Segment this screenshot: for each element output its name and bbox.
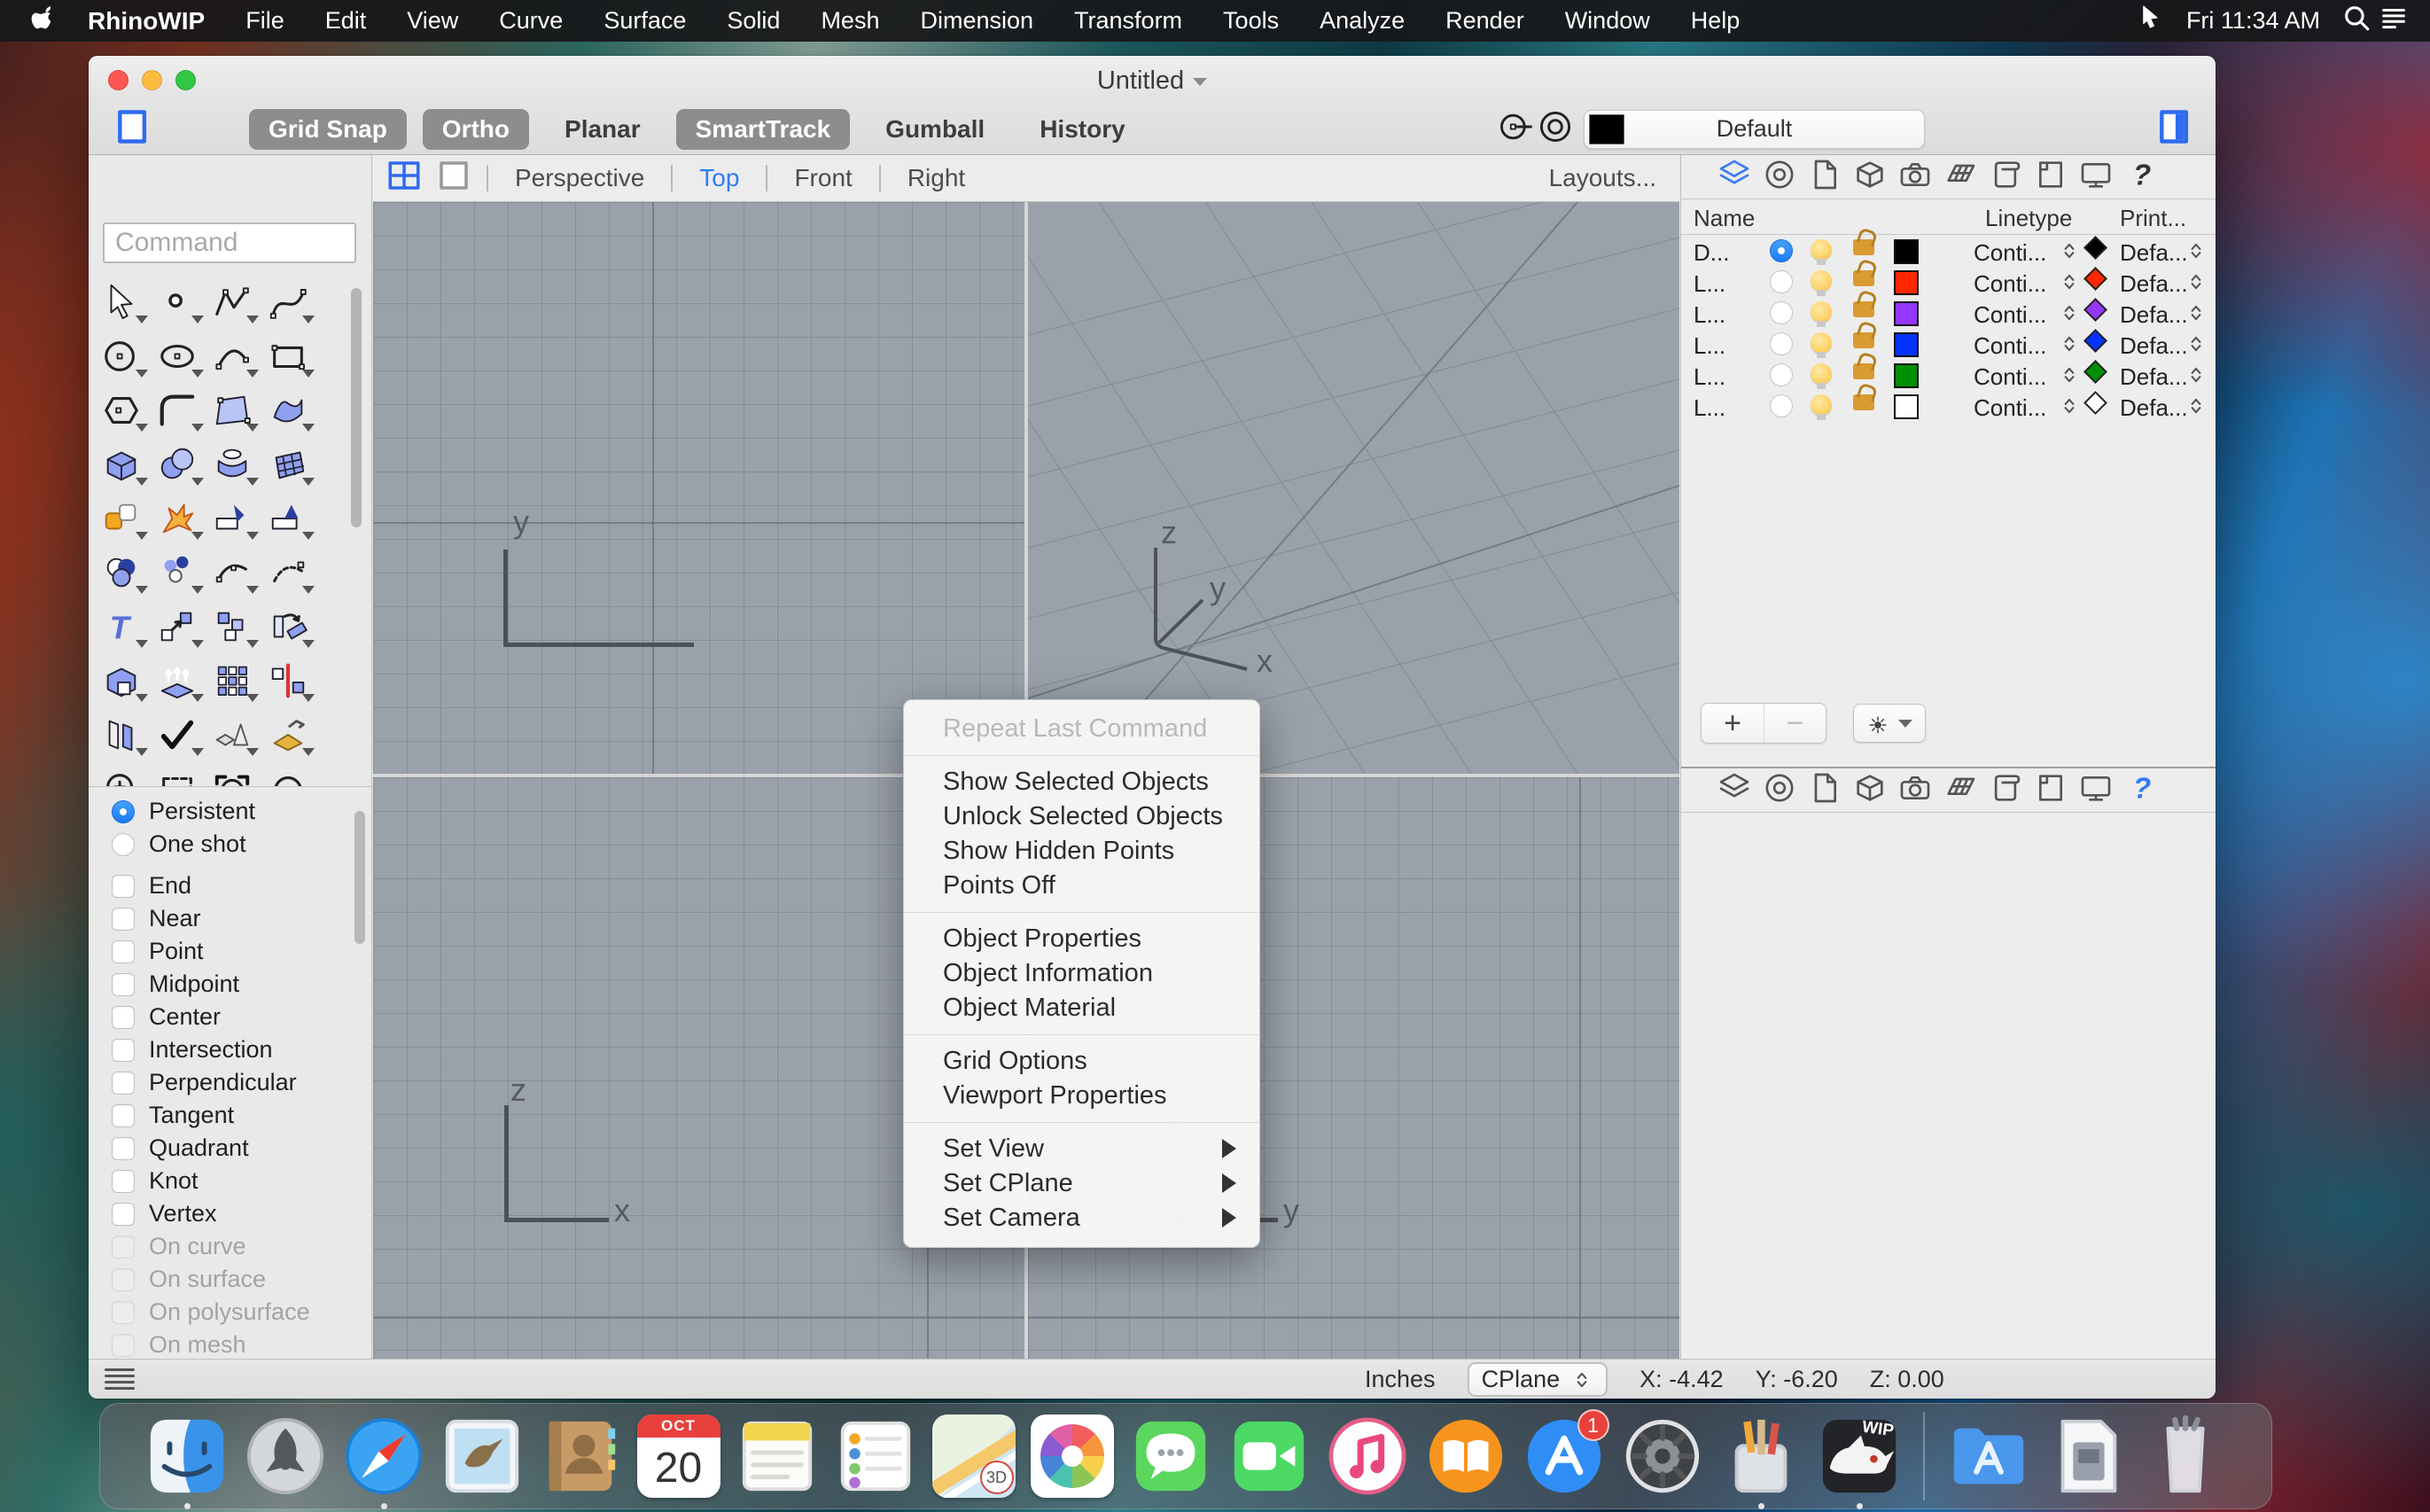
- coordinate-y: Y: -6.20: [1756, 1366, 1838, 1393]
- viewport-top[interactable]: y: [373, 202, 1024, 774]
- solids-tab-icon[interactable]: [1852, 160, 1888, 195]
- help-tab-icon[interactable]: ?: [2123, 160, 2159, 195]
- context-menu-item-object-properties[interactable]: Object Properties: [904, 922, 1259, 956]
- context-menu-item-viewport-properties[interactable]: Viewport Properties: [904, 1079, 1259, 1113]
- print-color-diamond[interactable]: [2083, 236, 2107, 260]
- layer-visibility-bulb-icon[interactable]: [1811, 363, 1832, 385]
- tool-ellipse[interactable]: [154, 333, 200, 379]
- osnap-near-row[interactable]: Near: [112, 902, 360, 935]
- camera-tab-icon[interactable]: [1897, 160, 1933, 195]
- context-menu-item-set-cplane[interactable]: Set CPlane: [904, 1166, 1259, 1201]
- layer-visibility-bulb-icon[interactable]: [1811, 394, 1832, 416]
- layer-visibility-bulb-icon[interactable]: [1811, 239, 1832, 261]
- layer-row[interactable]: L...Conti...Defa...: [1681, 299, 2216, 330]
- layer-lock-icon[interactable]: [1853, 363, 1874, 379]
- dock-contacts[interactable]: [539, 1415, 622, 1498]
- layer-row[interactable]: D...Conti...Defa...: [1681, 237, 2216, 268]
- osnap-perpendicular-checkbox[interactable]: [112, 1072, 135, 1095]
- current-layer-radio[interactable]: [1770, 332, 1793, 355]
- layer-color-swatch[interactable]: [1894, 332, 1919, 357]
- tool-copy[interactable]: [209, 604, 255, 650]
- print-stepper-icon[interactable]: [2185, 332, 2208, 355]
- menu-item-analyze[interactable]: Analyze: [1299, 7, 1425, 35]
- osnap-intersection-checkbox[interactable]: [112, 1039, 135, 1062]
- current-layer-radio[interactable]: [1770, 363, 1793, 386]
- tool-offset[interactable]: [98, 712, 144, 758]
- persistent-radio[interactable]: [112, 800, 135, 823]
- print-color-diamond[interactable]: [2083, 267, 2107, 291]
- one-shot-radio-row[interactable]: One shot: [112, 828, 360, 861]
- dock-app-store[interactable]: 1: [1523, 1415, 1606, 1498]
- osnap-perpendicular-row[interactable]: Perpendicular: [112, 1066, 360, 1099]
- dock-system-preferences[interactable]: [1621, 1415, 1704, 1498]
- tool-palette: T: [94, 279, 315, 786]
- main-toolbar: Grid Snap Ortho Planar SmartTrack Gumbal…: [89, 104, 2216, 155]
- gear-icon: [1866, 712, 1889, 735]
- menu-item-render[interactable]: Render: [1425, 7, 1545, 35]
- layer-row[interactable]: L...Conti...Defa...: [1681, 361, 2216, 392]
- layers-table-header: Name Linetype Print...: [1681, 199, 2216, 235]
- viewport-context-menu: Repeat Last Command Show Selected Object…: [903, 699, 1260, 1248]
- layer-actions-button[interactable]: [1853, 704, 1926, 743]
- dock-calendar[interactable]: OCT 20: [637, 1415, 720, 1498]
- add-layer-button[interactable]: +: [1702, 704, 1764, 743]
- tool-revolve[interactable]: [209, 441, 255, 487]
- dock-applications-folder[interactable]: [1947, 1415, 2030, 1498]
- notes-tab-icon[interactable]: [1988, 160, 2023, 195]
- osnap-vertex-row[interactable]: Vertex: [112, 1197, 360, 1230]
- units-label: Inches: [1365, 1366, 1436, 1393]
- coordinate-z: Z: 0.00: [1870, 1366, 1944, 1393]
- tool-plugins[interactable]: [98, 495, 144, 542]
- grid-snap-toggle[interactable]: Grid Snap: [249, 109, 407, 150]
- tool-dashed-select[interactable]: [154, 766, 200, 786]
- ortho-toggle[interactable]: Ortho: [423, 109, 529, 150]
- menu-item-surface[interactable]: Surface: [583, 7, 706, 35]
- perspective-z-axis-label: z: [1161, 514, 1177, 550]
- page-tab-icon[interactable]: [2033, 773, 2068, 808]
- menu-item-transform[interactable]: Transform: [1054, 7, 1203, 35]
- dock-mail[interactable]: [440, 1415, 524, 1498]
- tool-box[interactable]: [98, 441, 144, 487]
- help-tab-icon[interactable]: ?: [2123, 773, 2159, 808]
- tool-circle-plain[interactable]: [265, 766, 311, 786]
- osnap-midpoint-checkbox[interactable]: [112, 973, 135, 996]
- tool-split[interactable]: [265, 495, 311, 542]
- print-color-diamond[interactable]: [2083, 329, 2107, 353]
- osnap-tangent-checkbox[interactable]: [112, 1104, 135, 1127]
- document-tab-icon[interactable]: [1807, 160, 1842, 195]
- tool-point[interactable]: [154, 279, 200, 325]
- single-pane-icon[interactable]: [435, 160, 472, 197]
- right-panel: ? Name Linetype Print... D...Conti...Def…: [1680, 155, 2216, 1359]
- apple-menu-icon[interactable]: [28, 6, 58, 36]
- print-stepper-icon[interactable]: [2185, 394, 2208, 417]
- right-y-axis-label: y: [1283, 1192, 1299, 1229]
- panel-tab-bar-top: ?: [1681, 155, 2216, 199]
- linetype-stepper-icon[interactable]: [2058, 270, 2081, 293]
- notification-center-icon[interactable]: [2379, 6, 2409, 36]
- layer-row[interactable]: L...Conti...Defa...: [1681, 330, 2216, 361]
- smarttrack-toggle[interactable]: SmartTrack: [676, 109, 851, 150]
- document-tab-icon[interactable]: [1807, 773, 1842, 808]
- context-menu-item-object-material[interactable]: Object Material: [904, 991, 1259, 1025]
- history-toggle[interactable]: History: [1020, 109, 1144, 150]
- materials-tab-icon[interactable]: [1943, 160, 1978, 195]
- tool-orient[interactable]: [265, 712, 311, 758]
- rhino-window: Untitled Grid Snap Ortho Planar SmartTra…: [89, 56, 2216, 1399]
- osnap-point-checkbox[interactable]: [112, 940, 135, 963]
- layer-lock-icon[interactable]: [1853, 332, 1874, 348]
- osnap-center-row[interactable]: Center: [112, 1001, 360, 1033]
- window-title[interactable]: Untitled: [89, 66, 2216, 96]
- tool-fillet[interactable]: [154, 387, 200, 433]
- layer-visibility-bulb-icon[interactable]: [1811, 270, 1832, 292]
- calendar-month: OCT: [637, 1415, 720, 1438]
- print-stepper-icon[interactable]: [2185, 239, 2208, 262]
- tool-select[interactable]: [98, 279, 144, 325]
- display-tab-icon[interactable]: [1762, 773, 1797, 808]
- dock-photos[interactable]: [1031, 1415, 1114, 1498]
- context-menu-item-repeat-last-command: Repeat Last Command: [904, 712, 1259, 746]
- linetype-stepper-icon[interactable]: [2058, 332, 2081, 355]
- display-tab-icon[interactable]: [1762, 160, 1797, 195]
- layer-lock-icon[interactable]: [1853, 301, 1874, 317]
- context-menu-item-unlock-selected-objects[interactable]: Unlock Selected Objects: [904, 799, 1259, 834]
- menu-item-help[interactable]: Help: [1671, 7, 1761, 35]
- notes-tab-icon[interactable]: [1988, 773, 2023, 808]
- status-bar: Inches CPlane X: -4.42 Y: -6.20 Z: 0.00: [89, 1359, 2216, 1399]
- context-menu-separator: [904, 1034, 1259, 1035]
- updown-chevron-icon: [1570, 1368, 1593, 1391]
- chevron-down-icon: [1898, 720, 1912, 728]
- dock-rhino-wip[interactable]: WIP: [1818, 1415, 1901, 1498]
- context-menu-separator: [904, 1122, 1259, 1123]
- tool-arc[interactable]: [209, 333, 255, 379]
- context-menu-item-points-off[interactable]: Points Off: [904, 869, 1259, 903]
- osnap-end-row[interactable]: End: [112, 869, 360, 902]
- context-menu-item-grid-options[interactable]: Grid Options: [904, 1044, 1259, 1079]
- osnap-on-surface-row: On surface: [112, 1263, 360, 1296]
- osnap-on-mesh-row: On mesh: [112, 1329, 360, 1361]
- menu-bar-clock[interactable]: Fri 11:34 AM: [2172, 7, 2334, 35]
- osnap-quadrant-checkbox[interactable]: [112, 1137, 135, 1160]
- cplane-dropdown[interactable]: CPlane: [1468, 1362, 1608, 1397]
- viewport-tab-bar: Perspective Top Front Right Layouts...: [373, 155, 1679, 202]
- perspective-y-axis-label: y: [1210, 570, 1226, 606]
- tool-surface-sweep[interactable]: [265, 387, 311, 433]
- current-layer-dropdown[interactable]: Default: [1584, 110, 1925, 149]
- menu-item-edit[interactable]: Edit: [305, 7, 387, 35]
- osnap-on-curve-row: On curve: [112, 1230, 360, 1263]
- top-y-axis-label: y: [513, 503, 529, 541]
- print-stepper-icon[interactable]: [2185, 301, 2208, 324]
- osnap-knot-row[interactable]: Knot: [112, 1165, 360, 1197]
- tool-point-cloud[interactable]: [154, 549, 200, 596]
- dock-disk-image[interactable]: [2045, 1415, 2129, 1498]
- submenu-arrow-icon: [1222, 1139, 1236, 1158]
- context-menu-item-set-view[interactable]: Set View: [904, 1132, 1259, 1166]
- context-menu-item-set-camera[interactable]: Set Camera: [904, 1201, 1259, 1235]
- layer-color-swatch[interactable]: [1894, 363, 1919, 388]
- print-stepper-icon[interactable]: [2185, 270, 2208, 293]
- tool-zoom[interactable]: [98, 766, 144, 786]
- osnap-point-icon[interactable]: [1497, 110, 1536, 149]
- spotlight-search-icon[interactable]: [2341, 6, 2372, 36]
- osnap-near-checkbox[interactable]: [112, 908, 135, 931]
- monitor-tab-icon[interactable]: [2078, 160, 2114, 195]
- dock-finder[interactable]: [145, 1415, 229, 1498]
- tool-array[interactable]: [209, 658, 255, 704]
- status-menu-icon[interactable]: [105, 1368, 135, 1390]
- one-shot-radio[interactable]: [112, 833, 135, 856]
- perspective-grid: z y x: [1028, 202, 1679, 774]
- tool-boolean[interactable]: [98, 549, 144, 596]
- current-layer-radio[interactable]: [1770, 239, 1793, 262]
- menu-item-rhinowip[interactable]: RhinoWIP: [67, 7, 225, 35]
- dock-music[interactable]: [1326, 1415, 1409, 1498]
- tool-rectangle[interactable]: [265, 333, 311, 379]
- osnap-on-curve-checkbox: [112, 1235, 135, 1259]
- tool-curve[interactable]: [265, 279, 311, 325]
- dock-maps[interactable]: 3D: [932, 1415, 1016, 1498]
- concentric-circles-icon[interactable]: [1536, 110, 1575, 149]
- linetype-stepper-icon[interactable]: [2058, 239, 2081, 262]
- maps-3d-badge: 3D: [980, 1461, 1014, 1494]
- planar-toggle[interactable]: Planar: [545, 109, 660, 150]
- tool-rebuild[interactable]: [265, 549, 311, 596]
- top-y-axis: [503, 549, 508, 647]
- dock-messages[interactable]: [1129, 1415, 1212, 1498]
- osnap-quadrant-row[interactable]: Quadrant: [112, 1132, 360, 1165]
- viewport-zone: Perspective Top Front Right Layouts... y: [373, 155, 1679, 1359]
- tab-front[interactable]: Front: [782, 164, 864, 192]
- svg-text:?: ?: [2133, 160, 2151, 192]
- column-print: Print...: [2120, 205, 2186, 232]
- context-menu-separator: [904, 912, 1259, 913]
- layer-row[interactable]: L...Conti...Defa...: [1681, 392, 2216, 423]
- front-z-axis: [504, 1105, 509, 1222]
- tool-solid-edit[interactable]: [98, 658, 144, 704]
- tool-explode[interactable]: [154, 495, 200, 542]
- osnap-scrollbar[interactable]: [354, 811, 365, 944]
- tool-text[interactable]: T: [98, 604, 144, 650]
- front-z-axis-label: z: [510, 1072, 526, 1109]
- tab-perspective[interactable]: Perspective: [502, 164, 657, 192]
- pointer-status-icon[interactable]: [2135, 6, 2165, 36]
- gumball-toggle[interactable]: Gumball: [866, 109, 1004, 150]
- osnap-tangent-row[interactable]: Tangent: [112, 1099, 360, 1132]
- sidebar-divider: [89, 786, 371, 787]
- menu-item-window[interactable]: Window: [1545, 7, 1671, 35]
- tool-rotate[interactable]: [265, 604, 311, 650]
- dock-trash[interactable]: [2144, 1415, 2227, 1498]
- layer-color-swatch[interactable]: [1894, 394, 1919, 419]
- tool-primitives[interactable]: [209, 712, 255, 758]
- tool-mirror[interactable]: [265, 658, 311, 704]
- viewport-perspective[interactable]: z y x: [1028, 202, 1679, 774]
- coordinate-x: X: -4.42: [1639, 1366, 1724, 1393]
- tool-polygon[interactable]: [98, 387, 144, 433]
- svg-text:T: T: [110, 609, 132, 645]
- osnap-on-surface-checkbox: [112, 1268, 135, 1291]
- tool-blend[interactable]: [209, 549, 255, 596]
- osnap-center-checkbox[interactable]: [112, 1006, 135, 1029]
- remove-layer-button[interactable]: −: [1764, 704, 1826, 743]
- menu-item-file[interactable]: File: [225, 7, 305, 35]
- tool-polyline[interactable]: [209, 279, 255, 325]
- osnap-end-checkbox[interactable]: [112, 875, 135, 898]
- column-linetype: Linetype: [1985, 205, 2072, 232]
- layer-lock-icon[interactable]: [1853, 394, 1874, 410]
- submenu-arrow-icon: [1222, 1208, 1236, 1228]
- left-sidebar: T Persistent One shot: [89, 155, 372, 1359]
- photos-flower-icon: [1040, 1424, 1104, 1488]
- linetype-stepper-icon[interactable]: [2058, 301, 2081, 324]
- osnap-on-mesh-checkbox: [112, 1334, 135, 1357]
- submenu-arrow-icon: [1222, 1173, 1236, 1193]
- solids-tab-icon[interactable]: [1852, 773, 1888, 808]
- dock-reminders[interactable]: [834, 1415, 917, 1498]
- layer-color-swatch[interactable]: [1894, 270, 1919, 295]
- dock-books[interactable]: [1424, 1415, 1507, 1498]
- menu-item-view[interactable]: View: [386, 7, 479, 35]
- linetype-stepper-icon[interactable]: [2058, 363, 2081, 386]
- linetype-stepper-icon[interactable]: [2058, 394, 2081, 417]
- osnap-vertex-checkbox[interactable]: [112, 1203, 135, 1226]
- layer-visibility-bulb-icon[interactable]: [1811, 301, 1832, 323]
- tool-sphere[interactable]: [154, 441, 200, 487]
- print-color-diamond[interactable]: [2083, 298, 2107, 322]
- print-color-diamond[interactable]: [2083, 391, 2107, 415]
- menu-item-mesh[interactable]: Mesh: [800, 7, 900, 35]
- four-pane-grid-icon[interactable]: [386, 160, 423, 197]
- tool-view-capture[interactable]: [209, 766, 255, 786]
- left-panel-toggle-icon[interactable]: [113, 110, 152, 149]
- tool-extrude[interactable]: [154, 658, 200, 704]
- osnap-point-row[interactable]: Point: [112, 935, 360, 968]
- osnap-knot-checkbox[interactable]: [112, 1170, 135, 1193]
- camera-tab-icon[interactable]: [1897, 773, 1933, 808]
- tool-analyze-check[interactable]: [154, 712, 200, 758]
- menu-item-curve[interactable]: Curve: [479, 7, 583, 35]
- calendar-day: 20: [637, 1438, 720, 1498]
- context-menu-item-show-selected-objects[interactable]: Show Selected Objects: [904, 765, 1259, 799]
- layer-lock-icon[interactable]: [1853, 239, 1874, 255]
- context-menu-item-show-hidden-points[interactable]: Show Hidden Points: [904, 834, 1259, 869]
- menu-item-solid[interactable]: Solid: [706, 7, 800, 35]
- macos-menu-bar: RhinoWIP File Edit View Curve Surface So…: [0, 0, 2430, 42]
- dock-launchpad[interactable]: [244, 1415, 327, 1498]
- tool-move[interactable]: [154, 604, 200, 650]
- current-layer-radio[interactable]: [1770, 394, 1793, 417]
- column-name: Name: [1694, 205, 1755, 232]
- layers-tab-icon[interactable]: [1717, 773, 1752, 808]
- dock: OCT 20 3D 1 WIP: [99, 1403, 2272, 1509]
- app-store-badge: 1: [1577, 1409, 1609, 1441]
- layer-lock-icon[interactable]: [1853, 270, 1874, 286]
- layouts-button[interactable]: Layouts...: [1549, 164, 1679, 192]
- context-menu-separator: [904, 755, 1259, 756]
- tab-right[interactable]: Right: [895, 164, 977, 192]
- context-menu-item-object-information[interactable]: Object Information: [904, 956, 1259, 991]
- tool-trim[interactable]: [209, 495, 255, 542]
- tab-top[interactable]: Top: [687, 164, 752, 192]
- dock-design-tools[interactable]: [1719, 1415, 1803, 1498]
- layers-tab-icon[interactable]: [1717, 160, 1752, 195]
- monitor-tab-icon[interactable]: [2078, 773, 2114, 808]
- osnap-on-polysurface-checkbox: [112, 1301, 135, 1324]
- print-color-diamond[interactable]: [2083, 360, 2107, 384]
- osnap-on-polysurface-row: On polysurface: [112, 1296, 360, 1329]
- svg-text:?: ?: [2133, 773, 2151, 806]
- materials-tab-icon[interactable]: [1943, 773, 1978, 808]
- layer-row[interactable]: L...Conti...Defa...: [1681, 268, 2216, 299]
- layer-color-swatch[interactable]: [1894, 301, 1919, 326]
- osnap-midpoint-row[interactable]: Midpoint: [112, 968, 360, 1001]
- current-layer-radio[interactable]: [1770, 301, 1793, 324]
- front-x-axis: [504, 1218, 609, 1222]
- osnap-intersection-row[interactable]: Intersection: [112, 1033, 360, 1066]
- dock-divider: [1923, 1412, 1925, 1500]
- right-panel-toggle-icon[interactable]: [2155, 110, 2194, 149]
- top-x-axis: [503, 643, 694, 647]
- osnap-panel: Persistent One shot End Near Point Midpo…: [112, 795, 360, 1361]
- command-input[interactable]: [103, 222, 356, 263]
- tool-circle[interactable]: [98, 333, 144, 379]
- tool-surface-patch[interactable]: [265, 441, 311, 487]
- layer-color-swatch[interactable]: [1894, 239, 1919, 264]
- title-chevron-icon: [1193, 78, 1207, 86]
- tool-surface-points[interactable]: [209, 387, 255, 433]
- layer-visibility-bulb-icon[interactable]: [1811, 332, 1832, 354]
- dock-notes[interactable]: [736, 1415, 819, 1498]
- page-tab-icon[interactable]: [2033, 160, 2068, 195]
- tool-palette-scrollbar[interactable]: [351, 288, 362, 527]
- menu-item-dimension[interactable]: Dimension: [900, 7, 1054, 35]
- persistent-radio-row[interactable]: Persistent: [112, 795, 360, 828]
- perspective-x-axis-label: x: [1257, 643, 1273, 679]
- panel-tab-bar-bottom: ?: [1681, 767, 2216, 813]
- print-stepper-icon[interactable]: [2185, 363, 2208, 386]
- current-layer-radio[interactable]: [1770, 270, 1793, 293]
- window-title-bar: Untitled: [89, 56, 2216, 104]
- front-x-axis-label: x: [614, 1192, 630, 1229]
- dock-facetime[interactable]: [1227, 1415, 1311, 1498]
- menu-item-tools[interactable]: Tools: [1203, 7, 1299, 35]
- dock-safari[interactable]: [342, 1415, 425, 1498]
